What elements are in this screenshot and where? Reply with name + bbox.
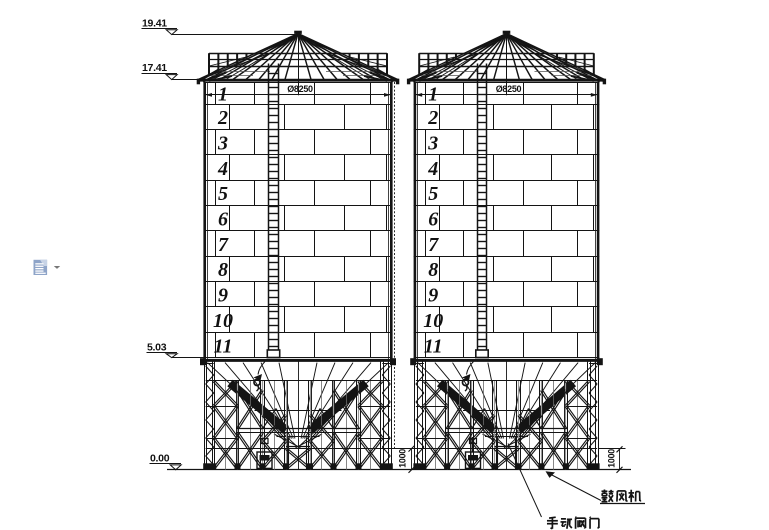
- svg-text:9: 9: [428, 285, 438, 307]
- svg-text:5: 5: [218, 183, 228, 205]
- svg-text:17.41: 17.41: [142, 62, 167, 74]
- svg-text:5.03: 5.03: [147, 341, 167, 353]
- svg-text:0.00: 0.00: [150, 453, 170, 465]
- svg-text:4: 4: [217, 158, 228, 180]
- svg-text:3: 3: [427, 133, 438, 155]
- svg-text:7: 7: [218, 234, 229, 256]
- svg-text:6: 6: [218, 209, 228, 231]
- svg-text:8: 8: [218, 259, 228, 281]
- svg-text:7: 7: [428, 234, 439, 256]
- svg-text:4: 4: [427, 158, 438, 180]
- svg-text:2: 2: [427, 107, 438, 129]
- svg-text:1000: 1000: [398, 449, 408, 468]
- svg-text:11: 11: [424, 335, 443, 357]
- svg-text:6: 6: [428, 209, 438, 231]
- svg-text:11: 11: [214, 335, 233, 357]
- svg-text:3: 3: [217, 133, 228, 155]
- svg-text:Ø8250: Ø8250: [287, 84, 313, 94]
- svg-text:2: 2: [217, 107, 228, 129]
- svg-text:9: 9: [218, 285, 228, 307]
- svg-text:1000: 1000: [607, 449, 617, 468]
- svg-text:19.41: 19.41: [142, 17, 167, 29]
- svg-text:5: 5: [428, 183, 438, 205]
- svg-text:10: 10: [423, 310, 443, 332]
- svg-text:Ø8250: Ø8250: [496, 84, 522, 94]
- svg-text:8: 8: [428, 259, 438, 281]
- svg-text:10: 10: [213, 310, 233, 332]
